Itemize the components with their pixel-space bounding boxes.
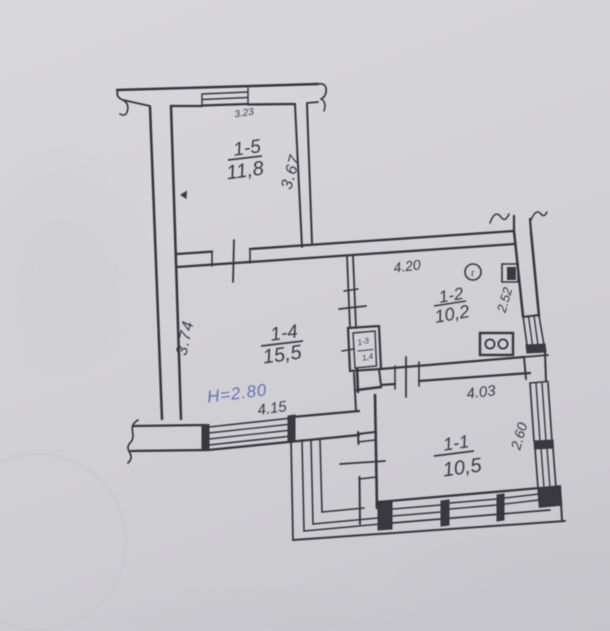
svg-text:11,8: 11,8 (225, 157, 265, 184)
svg-text:2.52: 2.52 (494, 285, 516, 315)
svg-text:1-3: 1-3 (357, 336, 371, 347)
svg-text:3.23: 3.23 (234, 107, 255, 121)
svg-text:15,5: 15,5 (261, 341, 303, 368)
svg-text:4.15: 4.15 (256, 398, 288, 419)
svg-text:3.67: 3.67 (278, 153, 304, 192)
svg-text:2.60: 2.60 (507, 420, 530, 452)
svg-text:4.03: 4.03 (466, 382, 498, 403)
svg-text:4.20: 4.20 (393, 256, 422, 275)
svg-text:1,4: 1,4 (361, 351, 374, 362)
svg-text:г: г (471, 269, 475, 280)
svg-text:10,5: 10,5 (441, 454, 483, 481)
